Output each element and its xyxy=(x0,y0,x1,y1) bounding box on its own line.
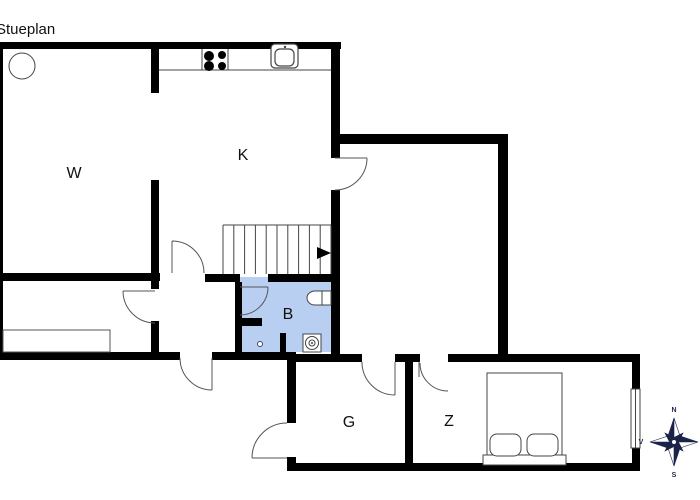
floor-drain-icon xyxy=(258,342,263,347)
compass-west-label: V xyxy=(639,439,644,446)
wall xyxy=(395,354,420,362)
stove-icon xyxy=(204,51,226,71)
compass-rose-icon: N V S xyxy=(639,407,698,479)
wall xyxy=(268,274,332,282)
door-arc-room-z xyxy=(419,362,448,391)
kitchen-counter xyxy=(159,49,331,70)
wall xyxy=(331,134,508,144)
room-label-g: G xyxy=(343,414,355,431)
sideboard xyxy=(3,330,110,352)
room-label-living: W xyxy=(66,165,82,182)
wall xyxy=(296,354,362,362)
door-arc-hall xyxy=(172,241,204,273)
plan-title: Stueplan xyxy=(0,21,55,38)
room-label-bedroom: Z xyxy=(444,413,454,430)
staircase xyxy=(223,225,331,274)
shower-drain-icon xyxy=(303,334,321,352)
bed-icon xyxy=(483,373,566,465)
compass-north-label: N xyxy=(671,407,676,414)
wall xyxy=(151,321,159,352)
room-label-kitchen: K xyxy=(238,147,249,164)
wall xyxy=(235,282,242,352)
wall xyxy=(240,318,262,326)
compass-south-label: S xyxy=(672,472,677,479)
wall xyxy=(151,180,159,273)
wall xyxy=(151,281,159,289)
wall xyxy=(0,273,160,281)
wall xyxy=(0,352,180,360)
wall xyxy=(205,274,240,282)
wall xyxy=(151,49,159,93)
room-label-bath: B xyxy=(283,306,294,323)
wall xyxy=(498,134,508,360)
door-arc-exterior-g xyxy=(252,423,287,458)
door-arc-room-west xyxy=(123,291,155,323)
table-circle xyxy=(9,53,35,79)
wall xyxy=(212,352,296,360)
stair-direction-arrow xyxy=(317,247,331,259)
wall xyxy=(331,49,340,158)
wall xyxy=(632,448,640,471)
floor-plan: N V S Stueplan W K B G Z xyxy=(0,0,700,500)
wall xyxy=(0,42,3,360)
wall xyxy=(280,333,286,352)
wall xyxy=(331,190,340,360)
door-arc-room-g xyxy=(362,362,395,395)
wall xyxy=(287,457,296,471)
wall xyxy=(405,362,413,463)
door-arc-exterior-south xyxy=(180,358,212,390)
wall xyxy=(287,463,640,471)
door-arc-kitchen-entry xyxy=(335,158,367,190)
wall xyxy=(448,354,640,362)
kitchen-sink-icon xyxy=(271,44,298,68)
wall xyxy=(632,354,640,390)
bathroom-sink-icon xyxy=(307,291,331,305)
wall xyxy=(287,360,296,423)
